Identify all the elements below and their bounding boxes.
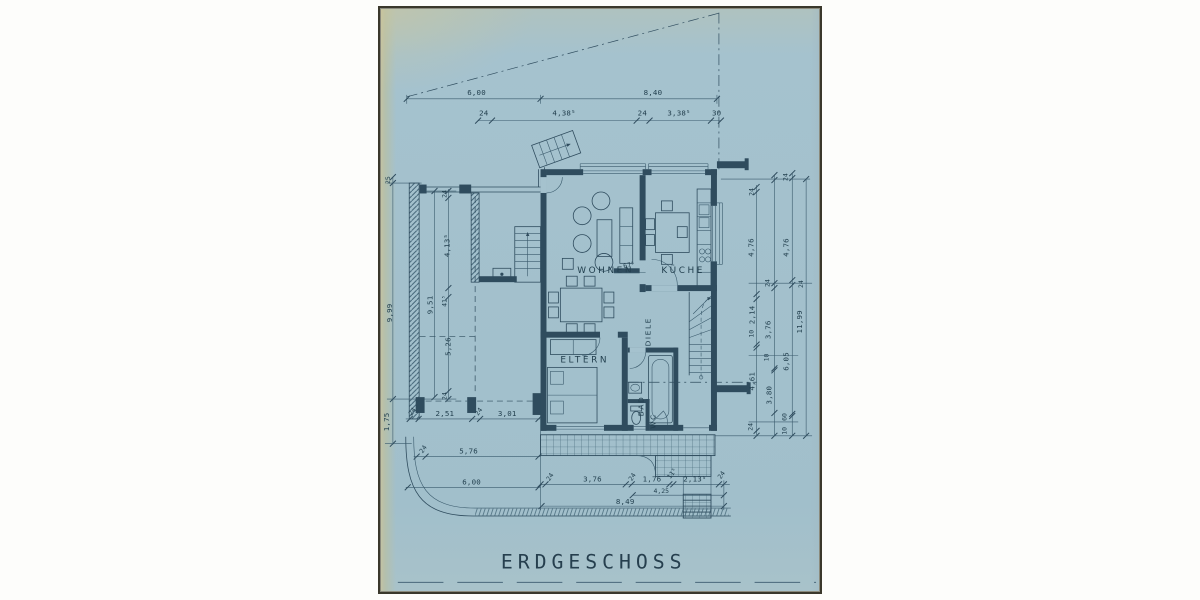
- dim-r-2: 4,76: [747, 238, 756, 257]
- west-wall: [541, 169, 547, 431]
- furniture: [547, 189, 711, 425]
- room-label-kueche: KÜCHE: [661, 265, 705, 276]
- dim-r-17: 11,99: [795, 310, 804, 333]
- dim-r-4: 2,14: [748, 305, 757, 324]
- dim-r-14: 3,80: [764, 386, 773, 405]
- sofa: [620, 208, 633, 263]
- dim-left-7: 5,26: [443, 337, 452, 356]
- kitchen-table: [655, 213, 689, 253]
- stove-burner: [699, 249, 704, 254]
- dim-bl-7: 6,00: [462, 477, 481, 486]
- dim-bl-6: 5,76: [459, 447, 478, 456]
- dim-br-4: 1,76: [643, 474, 662, 483]
- eltern-bad-wall: [622, 338, 628, 431]
- armchair: [573, 207, 591, 225]
- dim-bl-5: 24: [418, 444, 429, 455]
- room-label-bad: BAD: [637, 396, 646, 417]
- dim-left-3: 9,51: [426, 296, 435, 315]
- dim-r-9: 4,76: [781, 238, 790, 257]
- dim-r-16: 10: [780, 427, 788, 435]
- dim-top-2: 8,40: [644, 88, 663, 97]
- pillow: [550, 371, 563, 384]
- room-label-diele: DIELE: [644, 317, 653, 346]
- dim-br-3: 24: [627, 471, 638, 482]
- storage-room: [471, 193, 540, 282]
- entry-door-swing: [546, 177, 562, 193]
- armchair: [573, 235, 591, 253]
- dim-top-4: 4,38⁵: [552, 109, 575, 118]
- dim-top-1: 6,00: [467, 88, 486, 97]
- dim-bl-4: 3,01: [498, 409, 517, 418]
- main-stair: [689, 292, 711, 379]
- wohnen-eltern-wall: [541, 332, 600, 338]
- dim-r-12: 10: [762, 353, 770, 361]
- bad-door-swing: [630, 353, 646, 369]
- dim-left-2: 9,99: [385, 304, 394, 323]
- garage-west-wall: [409, 183, 419, 419]
- dim-r-3: 24: [763, 279, 771, 287]
- plan-title: ERDGESCHOSS: [501, 551, 687, 574]
- dim-br-1: 24: [545, 471, 556, 482]
- dim-br-6: 2,13⁵: [683, 474, 706, 483]
- dim-top-6: 3,38⁵: [667, 109, 690, 118]
- room-label-wc: WC: [648, 413, 657, 429]
- dim-r-5: 10: [748, 330, 756, 338]
- floor-plan-svg: WOHNEN KÜCHE DIELE ELTERN BAD WC 67⁵ 6,0…: [380, 8, 820, 592]
- entrance-steps: [532, 130, 581, 167]
- eltern-door-swing: [582, 338, 600, 356]
- dim-r-8: 24: [781, 173, 789, 181]
- dim-br-8: 4,25: [654, 487, 670, 495]
- dim-left-1: 25: [384, 176, 392, 184]
- dim-r-6: 4,61: [748, 372, 757, 391]
- dim-top-3: 24: [479, 109, 489, 118]
- dim-br-7: 24: [716, 469, 727, 480]
- dim-r-7: 24: [747, 423, 755, 431]
- dim-r-1: 24: [748, 188, 756, 196]
- house-walls: [541, 158, 751, 431]
- sink: [699, 205, 709, 215]
- dim-bl-2: 2,51: [435, 409, 454, 418]
- dim-top-7: 30: [712, 109, 721, 118]
- dim-r-10: 24: [797, 280, 805, 288]
- dim-br-2: 3,76: [583, 474, 602, 483]
- wohnen-kueche-wall: [640, 175, 646, 260]
- dim-left-6: 41⁵: [440, 295, 448, 307]
- blueprint-paper: WOHNEN KÜCHE DIELE ELTERN BAD WC 67⁵ 6,0…: [378, 6, 822, 594]
- bad-east-wall: [673, 348, 678, 431]
- dim-left-4: 24: [440, 190, 448, 198]
- storage-west-wall: [471, 193, 479, 282]
- east-pier-bottom: [711, 385, 749, 392]
- terrace-band: [541, 435, 715, 456]
- pillow: [550, 401, 563, 414]
- dim-top-5: 24: [638, 109, 648, 118]
- coffee-table: [597, 220, 612, 257]
- dining-table: [560, 288, 602, 322]
- dim-left-8: 24: [440, 392, 448, 400]
- room-label-eltern: ELTERN: [560, 355, 609, 365]
- dim-r-15: 60: [780, 413, 788, 421]
- dim-br-9: 8,49: [616, 497, 635, 506]
- east-pier-top: [717, 161, 747, 168]
- dim-r-11: 3,76: [763, 320, 772, 339]
- dim-r-13: 6,05: [781, 352, 790, 371]
- dim-left-5: 4,13⁵: [442, 234, 451, 257]
- terrace-band-lower: [655, 456, 710, 477]
- armchair: [592, 192, 610, 210]
- dim-left-9: 1,75: [382, 413, 391, 432]
- screenshot-canvas: WOHNEN KÜCHE DIELE ELTERN BAD WC 67⁵ 6,0…: [0, 0, 1200, 600]
